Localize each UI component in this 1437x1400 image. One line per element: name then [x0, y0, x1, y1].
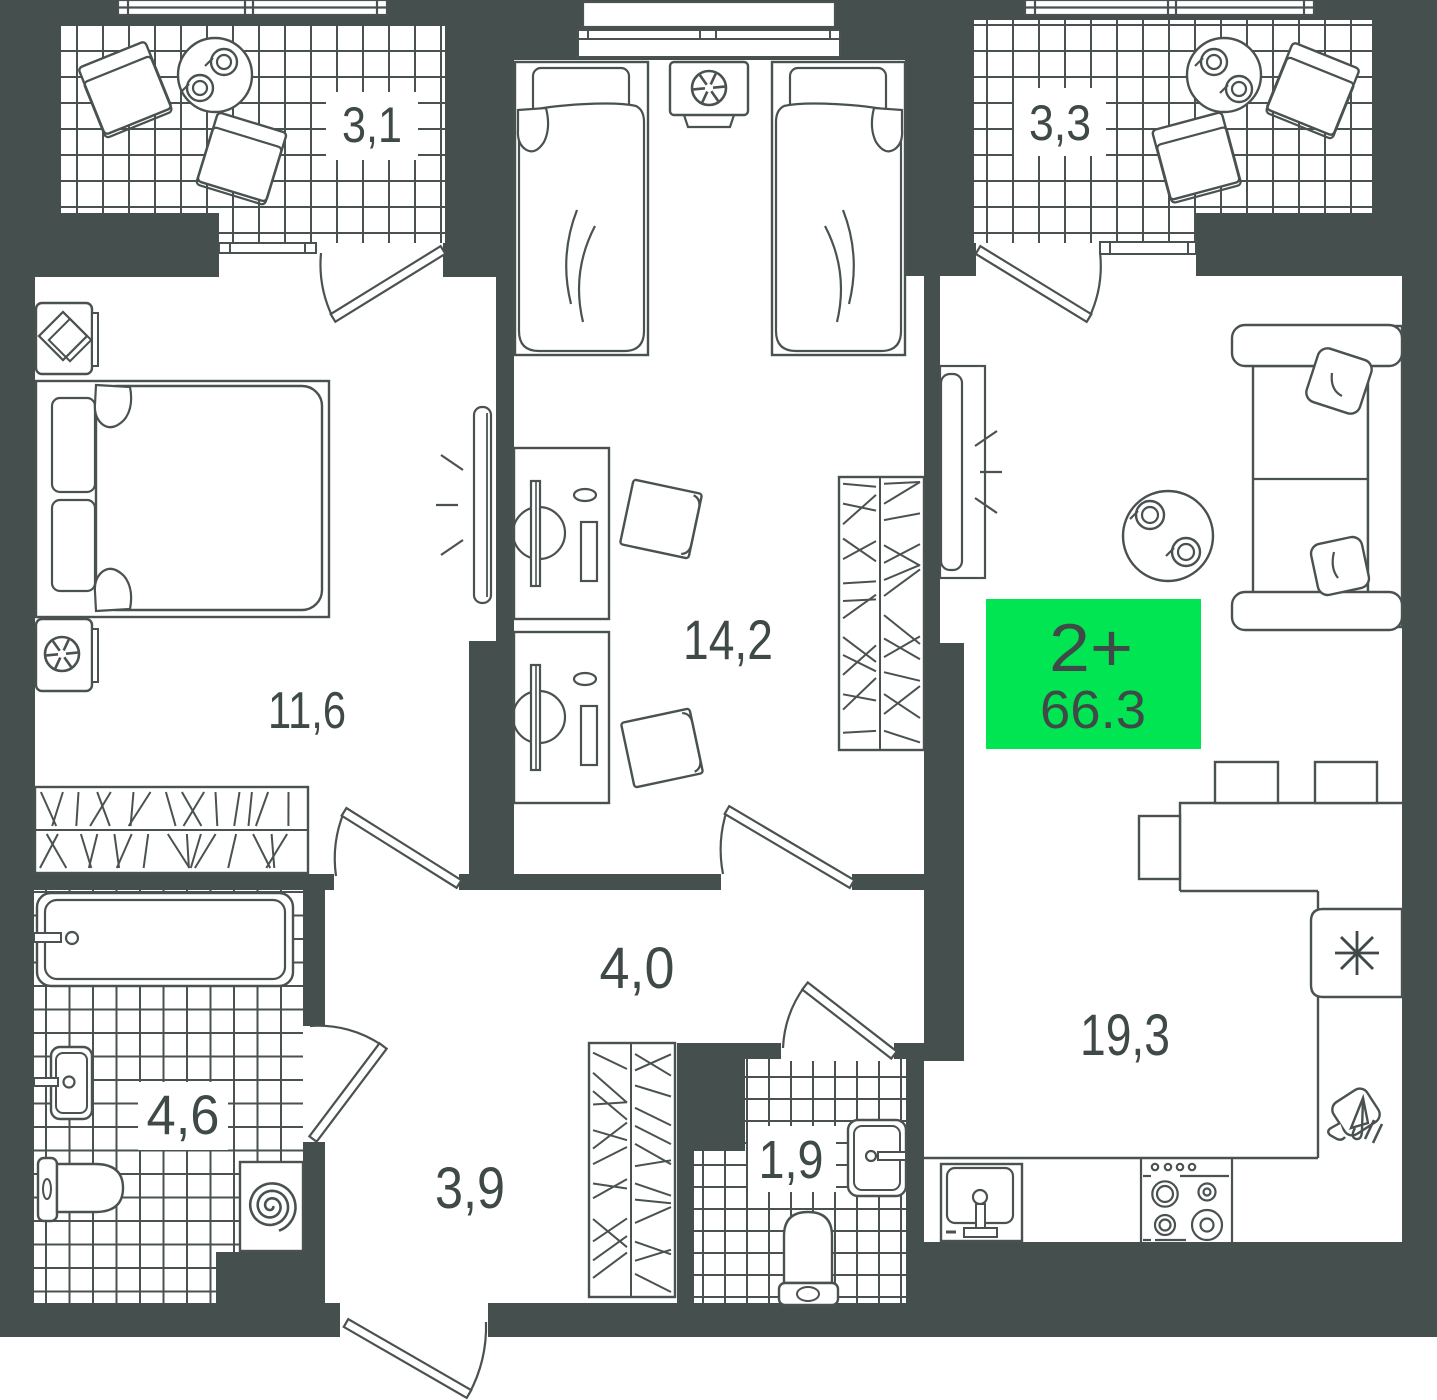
svg-text:3,1: 3,1	[342, 97, 402, 153]
svg-text:3,3: 3,3	[1029, 95, 1091, 151]
svg-text:2+: 2+	[1049, 610, 1133, 686]
svg-text:19,3: 19,3	[1080, 1003, 1170, 1068]
svg-text:1,9: 1,9	[759, 1130, 824, 1190]
svg-text:11,6: 11,6	[268, 682, 346, 740]
svg-text:3,9: 3,9	[435, 1156, 505, 1221]
svg-text:14,2: 14,2	[683, 608, 773, 671]
svg-text:66.3: 66.3	[1040, 680, 1146, 740]
svg-text:4,0: 4,0	[600, 936, 675, 1001]
svg-text:4,6: 4,6	[147, 1083, 220, 1146]
